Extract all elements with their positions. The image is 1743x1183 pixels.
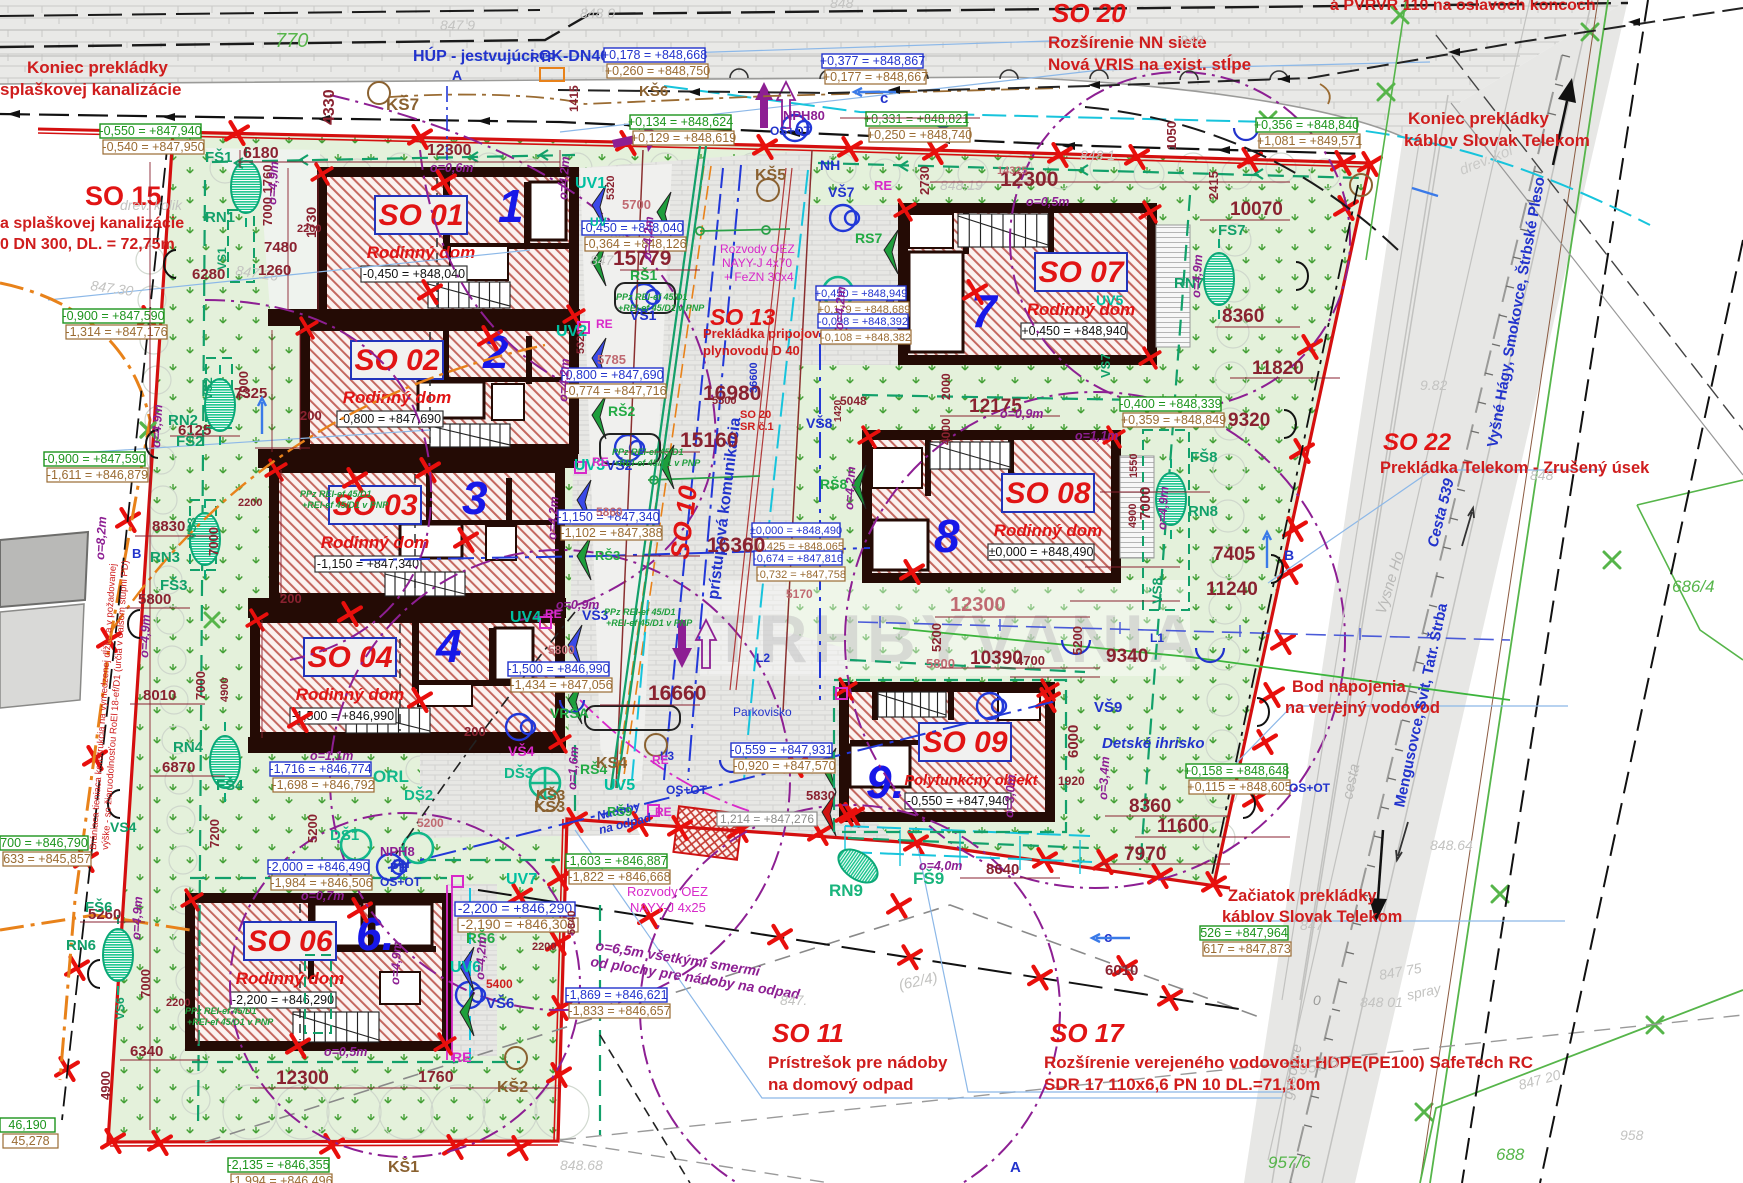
svg-text:6340: 6340 [130,1043,163,1060]
svg-text:UV: UV [590,215,607,229]
svg-text:-1,869 = +846,621: -1,869 = +846,621 [565,988,667,1002]
svg-text:Rozvody OEZ: Rozvody OEZ [627,884,708,899]
svg-text:+0,177 = +848,667: +0,177 = +848,667 [823,70,928,84]
svg-text:-2,200 = +846,290: -2,200 = +846,290 [232,993,334,1007]
svg-text:-0,674 = +847,816: -0,674 = +847,816 [753,553,843,565]
svg-text:Rodinný dom: Rodinný dom [321,533,430,552]
svg-text:Parkovisko: Parkovisko [733,705,792,719]
svg-text:ORL: ORL [373,767,409,786]
svg-text:HÚP - jestvujúci GK-DN40: HÚP - jestvujúci GK-DN40 [413,46,609,65]
svg-text:RŠ2: RŠ2 [608,402,635,419]
svg-text:PPz REI-ef 45/D1: PPz REI-ef 45/D1 [185,1006,257,1016]
svg-text:847 9: 847 9 [440,17,475,33]
svg-text:-1,603 = +846,887: -1,603 = +846,887 [565,854,667,868]
svg-text:1,214 = +847,276: 1,214 = +847,276 [720,812,814,826]
svg-text:9340: 9340 [1106,646,1148,667]
svg-text:RE: RE [874,178,892,193]
svg-text:4: 4 [435,620,462,672]
svg-text:A: A [452,67,462,83]
svg-text:DŠ1: DŠ1 [330,826,359,844]
svg-text:8360: 8360 [1222,306,1264,327]
svg-text:UV5: UV5 [604,777,635,794]
svg-text:15160: 15160 [680,429,738,452]
svg-text:8830: 8830 [152,518,185,535]
svg-text:-0,800 = +847,690: -0,800 = +847,690 [339,412,441,426]
svg-text:-1,984 = +846,506: -1,984 = +846,506 [270,876,372,890]
svg-text:-0,732 = +847,758: -0,732 = +847,758 [756,569,846,581]
svg-text:RN4: RN4 [173,739,204,756]
svg-text:7480: 7480 [264,239,297,256]
svg-text:o=3,0m: o=3,0m [1002,774,1018,818]
svg-text:Koniec prekládky: Koniec prekládky [1408,109,1549,128]
svg-text:+0,129 = +848,619: +0,129 = +848,619 [631,131,736,145]
svg-text:-0,108 = +848,382: -0,108 = +848,382 [821,332,911,344]
svg-text:200: 200 [300,408,322,423]
svg-text:7000: 7000 [138,969,153,998]
svg-text:VŠ4: VŠ4 [508,742,535,759]
svg-text:FŠ3: FŠ3 [160,576,188,594]
svg-text:FŠ2: FŠ2 [176,432,204,450]
svg-text:688: 688 [1496,1145,1525,1164]
svg-text:RŠ3: RŠ3 [595,548,620,563]
svg-text:SO 17: SO 17 [1050,1018,1125,1048]
svg-text:5800: 5800 [926,656,955,671]
svg-text:plynovodu D 40: plynovodu D 40 [703,343,800,358]
svg-text:NPH80: NPH80 [783,108,825,123]
svg-text:L1: L1 [1150,631,1164,645]
svg-text:957/6: 957/6 [1268,1153,1311,1172]
svg-text:VS2: VS2 [201,377,215,400]
svg-text:na domový odpad: na domový odpad [768,1075,913,1094]
svg-text:2200: 2200 [297,223,321,235]
svg-text:848.64: 848.64 [1430,837,1473,853]
svg-text:NH: NH [820,157,840,173]
svg-text:847: 847 [1300,917,1325,933]
svg-text:a splaškovej kanalizácie: a splaškovej kanalizácie [0,215,184,232]
svg-text:SO 20: SO 20 [740,409,771,421]
svg-text:o=0,9m: o=0,9m [556,598,599,612]
svg-text:6180: 6180 [243,145,279,162]
svg-text:o=4,0m: o=4,0m [919,859,962,873]
svg-text:6010: 6010 [1105,962,1138,979]
svg-text:3: 3 [462,472,488,524]
svg-text:1: 1 [498,180,524,232]
svg-text:RE: RE [652,753,669,767]
svg-text:-0,550 = +847,940: -0,550 = +847,940 [907,794,1009,808]
svg-text:NAYY-J 4x70: NAYY-J 4x70 [722,256,792,270]
svg-text:FŠ6: FŠ6 [85,898,113,916]
svg-text:+REI-ef 45/D1 v PNP: +REI-ef 45/D1 v PNP [618,303,705,313]
svg-text:UV2: UV2 [556,323,587,340]
svg-text:o=4,2m: o=4,2m [640,216,656,260]
svg-text:Prístrešok pre nádoby: Prístrešok pre nádoby [768,1053,948,1072]
svg-text:-1,500 = +846,990: -1,500 = +846,990 [507,662,609,676]
svg-text:-1,716 = +846,774: -1,716 = +846,774 [269,762,371,776]
svg-text:KS4: KS4 [596,755,627,772]
svg-text:Detské ihrisko: Detské ihrisko [1102,735,1205,752]
svg-text:KŠ3: KŠ3 [536,786,565,804]
svg-text:8: 8 [934,510,960,562]
svg-text:Rodinný dom: Rodinný dom [236,969,345,988]
svg-text:10070: 10070 [1230,199,1283,220]
svg-text:SO 20: SO 20 [1052,0,1126,28]
svg-text:5048: 5048 [840,394,867,408]
svg-text:VS7: VS7 [1098,353,1113,378]
svg-text:VS1: VS1 [215,247,229,270]
svg-text:SO 11: SO 11 [772,1018,844,1048]
svg-text:36600: 36600 [748,362,760,393]
svg-text:5500: 5500 [712,395,736,407]
svg-text:+0,331 = +848,821: +0,331 = +848,821 [864,112,969,126]
svg-text:5400: 5400 [486,977,513,991]
svg-text:o=4,9m: o=4,9m [265,161,281,205]
svg-text:DŠ3: DŠ3 [504,764,533,782]
svg-text:FŠ4: FŠ4 [216,776,244,794]
svg-text:4330: 4330 [321,89,338,125]
svg-text:RN6: RN6 [66,937,96,954]
svg-text:+0,356 = +848,840: +0,356 = +848,840 [1254,118,1359,132]
svg-text:-0,900 = +847,590: -0,900 = +847,590 [62,309,164,323]
svg-text:o=4,9m: o=4,9m [1189,254,1205,298]
svg-text:o=4,2m: o=4,2m [556,358,572,402]
svg-text:VŠ6: VŠ6 [486,994,514,1012]
svg-text:SO 01: SO 01 [378,199,463,232]
svg-text:VS4: VS4 [110,819,137,835]
svg-text:11240: 11240 [1206,579,1258,600]
svg-text:VŠ7: VŠ7 [828,183,855,200]
svg-text:7000: 7000 [236,371,251,400]
svg-text:o=0,9m: o=0,9m [1000,407,1043,421]
svg-text:5170: 5170 [786,587,813,601]
svg-text:SDR 17 110x6,6 PN 10 DL.=71,10: SDR 17 110x6,6 PN 10 DL.=71,10m [1044,1075,1320,1094]
svg-text:RS7: RS7 [855,230,882,246]
svg-text:770: 770 [275,30,308,52]
svg-text:5785: 5785 [597,352,626,367]
svg-text:+0,178 = +848,668: +0,178 = +848,668 [602,48,707,62]
svg-text:848 0: 848 0 [580,5,615,21]
svg-text:1420: 1420 [833,399,844,422]
svg-text:KŠ5: KŠ5 [755,165,786,184]
svg-text:2000: 2000 [939,373,953,400]
svg-text:o=4,9m: o=4,9m [129,896,145,940]
svg-text:FŠ8: FŠ8 [1190,448,1218,466]
svg-text:OS+OT: OS+OT [770,124,812,138]
svg-text:o=1,1m: o=1,1m [1075,429,1118,443]
svg-text:1920: 1920 [1058,774,1085,788]
svg-text:4000: 4000 [939,418,953,445]
svg-text:VŠ8: VŠ8 [1148,577,1165,604]
svg-text:5830: 5830 [806,788,835,803]
svg-text:+ FeZN 30x4: + FeZN 30x4 [724,270,794,284]
svg-text:-1,611 = +846,879: -1,611 = +846,879 [47,468,148,482]
svg-text:+0,450 = +848,949: +0,450 = +848,949 [815,288,908,300]
svg-text:848: 848 [1530,467,1554,483]
svg-text:Koniec prekládky: Koniec prekládky [27,58,168,77]
svg-text:SO 22: SO 22 [1383,429,1452,456]
svg-text:RE: RE [592,455,609,469]
svg-text:DŠ2: DŠ2 [404,786,433,804]
svg-text:drev. kolik: drev. kolik [120,197,183,213]
svg-text:-0,559 = +847,931: -0,559 = +847,931 [730,743,832,757]
svg-text:RN8: RN8 [1188,503,1218,520]
svg-text:7000: 7000 [206,527,221,556]
svg-text:1415: 1415 [567,85,581,112]
svg-text:SO 02: SO 02 [354,344,439,377]
svg-text:-0,900 = +847,590: -0,900 = +847,590 [43,452,145,466]
svg-text:848.19: 848.19 [940,177,983,193]
svg-text:848 01: 848 01 [1360,994,1403,1010]
svg-text:-1,102 = +847,388: -1,102 = +847,388 [560,526,662,540]
svg-text:8010: 8010 [143,687,176,704]
svg-text:RE: RE [596,317,613,331]
svg-text:B: B [1284,547,1294,563]
svg-text:Rodinný dom: Rodinný dom [994,521,1103,540]
svg-text:617 = +847,873: 617 = +847,873 [1203,942,1291,956]
svg-text:1050: 1050 [1164,121,1179,150]
svg-text:849: 849 [1180,32,1204,48]
svg-text:SO 07: SO 07 [1038,256,1124,289]
svg-text:±0,000 = +848,490: ±0,000 = +848,490 [989,545,1094,559]
svg-text:4900: 4900 [98,1071,113,1100]
svg-text:0: 0 [1313,992,1321,1008]
svg-text:FS7: FS7 [1218,222,1246,239]
svg-text:6000: 6000 [1065,725,1082,758]
svg-text:5200: 5200 [929,623,944,652]
svg-text:A: A [1010,1159,1021,1176]
svg-text:o=4,9m: o=4,9m [137,614,153,658]
svg-text:á PVRVR 110 na oslavoch koncoc: á PVRVR 110 na oslavoch koncoch [1330,0,1596,14]
svg-text:VRŠA: VRŠA [550,704,589,721]
svg-text:o=4,9m: o=4,9m [1155,486,1171,530]
svg-text:+0,377 = +848,867: +0,377 = +848,867 [820,54,925,68]
svg-text:PPz REI-ef 45/D1: PPz REI-ef 45/D1 [300,489,372,499]
svg-text:16660: 16660 [648,682,706,705]
svg-text:Začiatok prekládky: Začiatok prekládky [1228,887,1377,905]
svg-text:2730: 2730 [917,166,932,195]
svg-text:SR č.1: SR č.1 [740,421,774,433]
svg-text:+0,260 = +848,750: +0,260 = +848,750 [605,64,710,78]
svg-text:7000: 7000 [193,671,208,700]
svg-text:RN1: RN1 [205,209,235,226]
svg-text:8640: 8640 [986,861,1019,878]
svg-text:-2,200 = +846,290: -2,200 = +846,290 [458,900,573,916]
svg-text:SO 08: SO 08 [1005,477,1090,510]
svg-text:RŠ1: RŠ1 [630,266,657,283]
svg-text:RN3: RN3 [150,549,180,566]
svg-text:RE: RE [655,805,672,819]
svg-text:Polyfunkčný objekt: Polyfunkčný objekt [905,773,1039,789]
svg-text:9.82: 9.82 [1420,377,1447,393]
svg-text:PPz REI-ef 45/D1: PPz REI-ef 45/D1 [604,607,676,617]
svg-text:o=4,2m: o=4,2m [473,936,489,980]
svg-text:o=4,2m: o=4,2m [545,496,561,540]
svg-text:o=8,2m: o=8,2m [93,516,109,560]
svg-text:16360: 16360 [707,534,765,557]
svg-text:+0,158 = +848,648: +0,158 = +848,648 [1184,764,1289,778]
svg-text:-0,540 = +847,950: -0,540 = +847,950 [102,140,204,154]
svg-text:-1,698 = +846,792: -1,698 = +846,792 [272,778,374,792]
svg-text:9.: 9. [866,756,904,808]
svg-text:847: 847 [590,252,615,268]
svg-text:NAYY-J 4x25: NAYY-J 4x25 [630,900,706,915]
svg-text:o=4,2m: o=4,2m [832,286,848,330]
svg-text:-0,550 = +847,940: -0,550 = +847,940 [99,124,201,138]
svg-text:UV7: UV7 [506,871,537,888]
svg-text:11820: 11820 [1252,358,1304,379]
svg-text:848: 848 [830,0,854,11]
svg-text:Nová VRIS na exist. stĺpe: Nová VRIS na exist. stĺpe [1048,54,1251,74]
svg-text:UV4: UV4 [510,609,541,626]
svg-text:Rozvody OEZ: Rozvody OEZ [720,242,795,256]
svg-text:5200: 5200 [1070,626,1085,655]
svg-text:OS+OT: OS+OT [380,875,422,889]
svg-text:-1,833 = +846,657: -1,833 = +846,657 [568,1004,670,1018]
svg-text:RTP: RTP [530,50,556,65]
svg-text:2415: 2415 [1206,171,1221,200]
svg-text:46,190: 46,190 [8,1118,46,1132]
svg-text:VS3: VS3 [185,517,199,540]
svg-text:Rodinný dom: Rodinný dom [367,243,476,262]
svg-text:7970: 7970 [1124,844,1166,865]
svg-text:+0,115 = +848,605: +0,115 = +848,605 [1187,780,1291,794]
svg-text:KŠ1: KŠ1 [388,1157,419,1176]
svg-text:o=0,5m: o=0,5m [1026,195,1069,209]
svg-text:RE: RE [452,1049,471,1065]
svg-text:700 = +846,790: 700 = +846,790 [0,836,88,850]
svg-text:686/4: 686/4 [1672,577,1715,596]
svg-text:o=4,2m: o=4,2m [842,466,858,510]
svg-text:5200: 5200 [417,816,444,830]
svg-text:+1,081 = +849,571: +1,081 = +849,571 [1257,134,1362,148]
svg-text:2200: 2200 [532,941,556,953]
svg-text:B: B [132,546,141,561]
svg-text:o=4,2m: o=4,2m [556,156,572,200]
svg-text:-1,994 = +846,496: -1,994 = +846,496 [230,1174,332,1183]
svg-text:7405: 7405 [1213,544,1256,565]
svg-text:-1,314 = +847,176: -1,314 = +847,176 [65,325,167,339]
svg-text:-0,800 = +847,690: -0,800 = +847,690 [561,368,663,382]
svg-text:-2,135 = +846,355: -2,135 = +846,355 [227,1158,329,1172]
svg-text:12300: 12300 [427,142,472,159]
svg-text:5200: 5200 [305,814,320,843]
svg-text:o=0,6m: o=0,6m [430,161,473,175]
svg-text:10390: 10390 [970,648,1023,669]
svg-text:+REI-ef 45/D1 v PNP: +REI-ef 45/D1 v PNP [614,458,701,468]
svg-text:12300: 12300 [276,1068,329,1089]
svg-text:o=4,9m: o=4,9m [388,941,404,985]
svg-text:FŠ1: FŠ1 [205,148,233,166]
svg-text:8360: 8360 [1129,796,1171,817]
svg-text:VS6: VS6 [113,997,127,1020]
svg-text:-2,000 = +846,490: -2,000 = +846,490 [267,860,369,874]
svg-text:RŠ9: RŠ9 [607,804,632,819]
svg-text:KŠ6: KŠ6 [639,82,668,100]
svg-text:200: 200 [464,724,486,739]
svg-text:o=4,9m: o=4,9m [149,404,165,448]
svg-text:5320: 5320 [605,176,617,200]
svg-text:5800: 5800 [548,643,575,657]
svg-text:o=0,7m: o=0,7m [301,889,344,903]
svg-text:o=1,6m: o=1,6m [565,746,581,790]
svg-text:+0,359 = +848,849: +0,359 = +848,849 [1121,413,1226,427]
svg-text:958: 958 [1620,1127,1644,1143]
svg-text:UV5: UV5 [1096,292,1123,308]
svg-text:-0,774 = +847,716: -0,774 = +847,716 [564,384,666,398]
svg-text:6870: 6870 [162,759,195,776]
svg-text:+REI-ef 45/D1 v PNP: +REI-ef 45/D1 v PNP [606,618,693,628]
svg-text:9320: 9320 [1228,410,1270,431]
svg-text:5860: 5860 [596,505,623,519]
svg-text:Bod napojenia: Bod napojenia [1292,678,1406,696]
svg-text:5840: 5840 [566,911,578,935]
svg-text:splaškovej kanalizácie: splaškovej kanalizácie [0,80,181,99]
svg-text:KŠ2: KŠ2 [497,1077,528,1096]
svg-text:Prekládka Telekom - Zrušený ús: Prekládka Telekom - Zrušený úsek [1380,459,1650,477]
svg-text:o=0,5m: o=0,5m [324,1045,367,1059]
svg-text:848 1: 848 1 [1080,147,1115,163]
svg-text:7200: 7200 [207,819,222,848]
svg-text:633 = +845,857: 633 = +845,857 [3,852,91,866]
svg-text:VŠ9: VŠ9 [1094,698,1122,716]
svg-text:PH: PH [393,857,410,871]
svg-text:526 = +847,964: 526 = +847,964 [1200,926,1288,940]
svg-text:RN2: RN2 [168,412,198,429]
svg-text:848.68: 848.68 [560,1157,603,1173]
svg-text:4900: 4900 [219,678,231,702]
svg-text:14325: 14325 [997,165,1028,177]
svg-text:SO 04: SO 04 [307,641,392,674]
svg-text:+REI-ef 45/D1 v PNP: +REI-ef 45/D1 v PNP [187,1017,274,1027]
svg-text:UV1: UV1 [575,175,606,192]
svg-text:RN9: RN9 [829,881,863,900]
svg-text:200: 200 [280,591,302,606]
svg-text:-0,920 = +847,570: -0,920 = +847,570 [733,759,835,773]
svg-text:5700: 5700 [622,197,651,212]
svg-text:1550: 1550 [1128,454,1140,478]
svg-text:0 DN 300, DL. = 72,75m: 0 DN 300, DL. = 72,75m [0,236,175,253]
svg-text:OS+OT: OS+OT [1289,781,1331,795]
svg-text:o=3,4m: o=3,4m [1096,756,1112,800]
svg-text:+0,250 = +848,740: +0,250 = +848,740 [867,128,972,142]
svg-text:1760: 1760 [418,1069,454,1086]
svg-text:-1,822 = +846,668: -1,822 = +846,668 [568,870,670,884]
svg-text:45,278: 45,278 [11,1134,49,1148]
svg-text:L2: L2 [756,651,770,665]
svg-text:VŠ8: VŠ8 [806,414,833,431]
svg-text:-0,400 = +848,339: -0,400 = +848,339 [1119,397,1221,411]
svg-text:+REI-ef 45/D1 v PNP: +REI-ef 45/D1 v PNP [302,500,389,510]
svg-text:PPz REI-ef 45/D1: PPz REI-ef 45/D1 [616,292,688,302]
svg-text:KŠ7: KŠ7 [386,95,419,114]
svg-text:SO 06: SO 06 [247,925,332,958]
svg-text:11600: 11600 [1157,816,1209,837]
svg-text:1260: 1260 [258,262,291,279]
svg-text:-1,434 = +847,056: -1,434 = +847,056 [510,678,612,692]
svg-text:847.: 847. [780,992,807,1008]
svg-text:12300: 12300 [950,594,1006,616]
svg-text:PPz REI-ef 45/D1: PPz REI-ef 45/D1 [612,447,684,457]
svg-text:o=1,1m: o=1,1m [310,749,353,763]
svg-text:4700: 4700 [1016,653,1045,668]
svg-text:+0,134 = +848,624: +0,134 = +848,624 [628,115,733,129]
svg-text:OS+OT: OS+OT [666,783,708,797]
svg-text:-0,450 = +848,040: -0,450 = +848,040 [363,267,465,281]
svg-text:2200: 2200 [238,497,262,509]
